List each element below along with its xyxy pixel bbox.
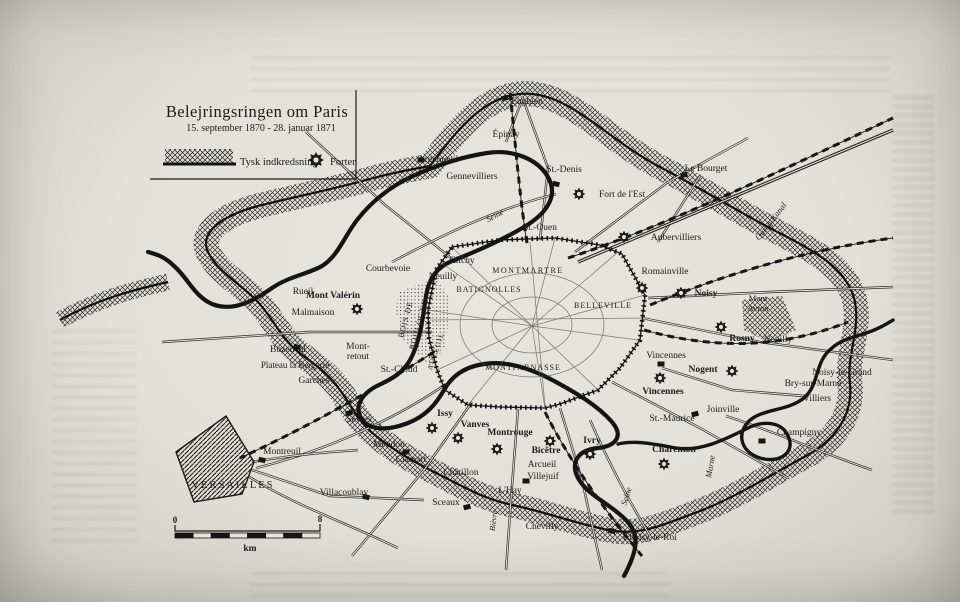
map-label: BATIGNOLLES <box>456 285 521 294</box>
map-label: St.-Denis <box>546 165 582 175</box>
map-label: Ivry <box>583 436 601 446</box>
map-label: Mont- <box>346 342 370 352</box>
map-label: Nogent <box>688 365 718 375</box>
map-label: VERSAILLES <box>192 480 275 491</box>
fort-icon <box>636 282 649 295</box>
map-label: Enghien <box>511 97 543 107</box>
map-label: Issy <box>437 409 453 419</box>
scale-segment <box>229 533 247 538</box>
fort-icon <box>426 422 439 435</box>
map-label: Champigny <box>777 428 822 438</box>
scale-segment <box>302 533 320 538</box>
map-label: Bièvre <box>488 509 499 531</box>
scale-segment <box>211 533 229 538</box>
fort-icon <box>491 443 504 456</box>
map-subtitle: 15. september 1870 - 28. januar 1871 <box>186 123 335 134</box>
map-label: Clamart <box>396 455 427 465</box>
map-label: Garches <box>298 376 329 386</box>
map-label: Villiers <box>803 394 831 404</box>
map-label: Montrouge <box>487 428 532 438</box>
book-page: Belejringsringen om Paris 15. september … <box>0 0 960 602</box>
scale-segment <box>193 533 211 538</box>
scale-unit-label: km <box>243 544 256 554</box>
fort-icon <box>618 231 631 244</box>
map-title: Belejringsringen om Paris <box>166 102 348 121</box>
scale-bar: 0 8 km <box>173 514 323 554</box>
map-label: Gennevilliers <box>446 172 497 182</box>
fort-icon <box>308 152 324 168</box>
siege-map: Belejringsringen om Paris 15. september … <box>0 0 960 602</box>
legend-band-label: Tysk indkredsning <box>240 157 318 168</box>
fort-icon <box>452 432 465 445</box>
map-label: Villacoublay <box>320 488 369 498</box>
fort-icon <box>658 458 671 471</box>
map-label: Le Bourget <box>685 164 728 174</box>
map-label: Seine <box>484 207 505 225</box>
map-label: Châtillon <box>443 468 479 478</box>
town-marker <box>463 504 471 511</box>
map-label: Sceaux <box>432 498 460 508</box>
map-label: Mont Valérin <box>306 291 361 301</box>
fort-icon <box>675 287 688 300</box>
map-label: Meudon <box>373 440 405 450</box>
map-label: Villejuif <box>527 471 559 482</box>
map-label: Montreuil <box>263 447 301 457</box>
map-label: Vanves <box>461 420 490 430</box>
legend-band-swatch <box>165 149 233 163</box>
map-label: Rosny <box>729 334 755 344</box>
map-label: Chevilly <box>526 522 559 532</box>
map-label: Courbevoie <box>366 264 410 274</box>
map-label: Buzenval <box>270 345 306 355</box>
map-label: Malmaison <box>292 308 335 318</box>
map-label: Arcueil <box>528 460 557 470</box>
fort-icon <box>584 448 597 461</box>
map-label: Bicêtre <box>532 446 561 456</box>
map-label: MONTPARNASSE <box>485 363 561 372</box>
fort-icon <box>715 321 728 334</box>
town-marker <box>759 439 766 444</box>
map-label: St.-Ouen <box>523 223 557 233</box>
fort-icon <box>654 372 667 385</box>
legend-fort-label: Forter <box>330 157 356 168</box>
map-label: Aubervilliers <box>651 233 701 243</box>
map-label: Clichy <box>449 256 475 266</box>
town-marker <box>658 362 665 367</box>
town-marker <box>258 457 266 464</box>
scale-end-label: 8 <box>318 514 323 524</box>
scale-segment <box>248 533 266 538</box>
scale-segment <box>175 533 193 538</box>
scale-segment <box>266 533 284 538</box>
fort-icon <box>351 303 364 316</box>
map-label: Noisy-le-Grand <box>812 368 872 378</box>
map-label: Joinville <box>707 405 740 415</box>
scale-segment <box>284 533 302 538</box>
map-label: Choisy-le-Roi <box>623 533 677 543</box>
map-label: Marne <box>703 454 717 479</box>
map-label: L'Hay <box>498 486 522 496</box>
map-label: St.-Maurice <box>649 414 694 424</box>
map-label: Mont <box>749 293 768 303</box>
fort-icon <box>726 365 739 378</box>
map-label: St.-Cloud <box>381 365 418 375</box>
map-label: Charenton <box>652 445 696 455</box>
fort-icon <box>573 188 586 201</box>
map-label: Vincennes <box>642 387 684 397</box>
map-label: Fort de l'Est <box>599 190 645 200</box>
map-label: Avron <box>747 303 769 313</box>
map-label: retout <box>347 352 370 362</box>
map-label: BELLEVILLE <box>574 301 632 310</box>
scale-start-label: 0 <box>173 515 178 525</box>
map-label: Neuilly <box>429 272 458 282</box>
map-label: Noisy <box>695 289 718 299</box>
town-marker <box>403 450 410 455</box>
map-label: Sèvres <box>346 415 372 425</box>
map-label: Épinay <box>493 128 520 140</box>
map-label: Plateau la Bergerie <box>261 360 329 370</box>
map-label: Neuilly <box>764 335 793 345</box>
map-label: Argenteuil <box>418 155 459 165</box>
map-label: MONTMARTRE <box>492 266 563 275</box>
map-label: Romainville <box>642 267 689 277</box>
map-label: Vincennes <box>646 351 686 361</box>
map-label: Bry-sur-Marne <box>785 379 842 389</box>
title-box: Belejringsringen om Paris 15. september … <box>150 90 356 179</box>
